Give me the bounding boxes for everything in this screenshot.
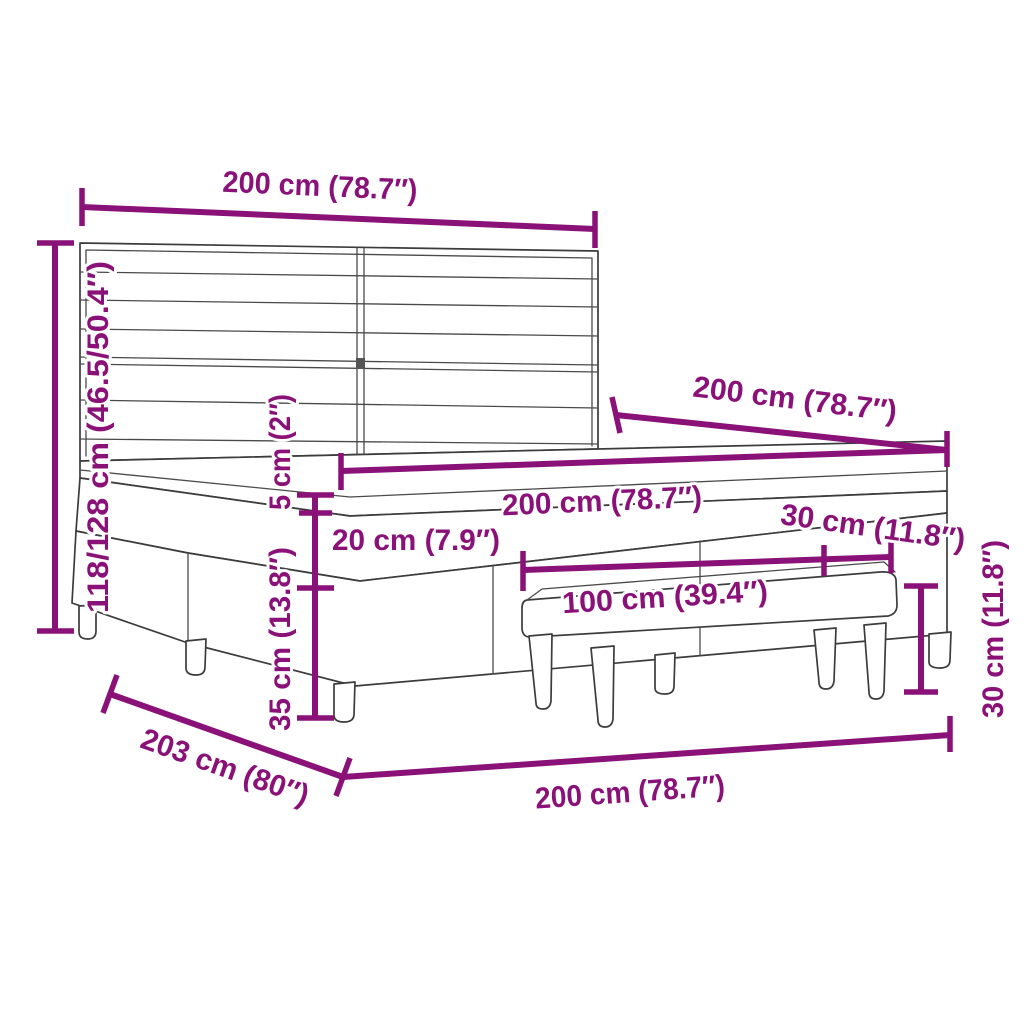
dim-label-total-height: 118/128 cm (46.5/50.4″) — [82, 261, 115, 613]
dimension-diagram: 200 cm (78.7″) 118/128 cm (46.5/50.4″) 2… — [0, 0, 1024, 1024]
dim-bed-width-bottom: 200 cm (78.7″) — [343, 716, 950, 816]
dim-label-topper-height: 5 cm (2″) — [264, 394, 297, 510]
bed-leg — [655, 653, 675, 694]
dim-label-bench-height: 30 cm (11.8″) — [977, 540, 1010, 718]
dim-label-mattress-height: 20 cm (7.9″) — [332, 524, 500, 557]
dim-tick — [612, 397, 620, 433]
headboard-center-joint — [356, 358, 365, 369]
dim-label-bed-length: 200 cm (78.7″) — [691, 371, 898, 429]
dim-label-bed-width-bottom: 200 cm (78.7″) — [534, 769, 726, 815]
bench-leg — [814, 628, 836, 689]
bench-leg — [529, 634, 552, 709]
bed-leg — [929, 632, 951, 668]
dim-headboard-width: 200 cm (78.7″) — [82, 166, 595, 248]
bench-leg — [591, 646, 614, 727]
bench-leg — [864, 623, 886, 699]
dim-line — [82, 207, 595, 229]
bed-dimension-drawing: 200 cm (78.7″) 118/128 cm (46.5/50.4″) 2… — [0, 0, 1024, 1024]
bed-leg — [186, 639, 206, 675]
headboard — [80, 243, 598, 461]
dim-line — [343, 735, 950, 777]
bed-drawing — [72, 243, 951, 727]
dim-label-base-height: 35 cm (13.8″) — [264, 547, 297, 731]
bed-leg — [334, 682, 355, 722]
dim-label-headboard-width: 200 cm (78.7″) — [222, 166, 418, 207]
